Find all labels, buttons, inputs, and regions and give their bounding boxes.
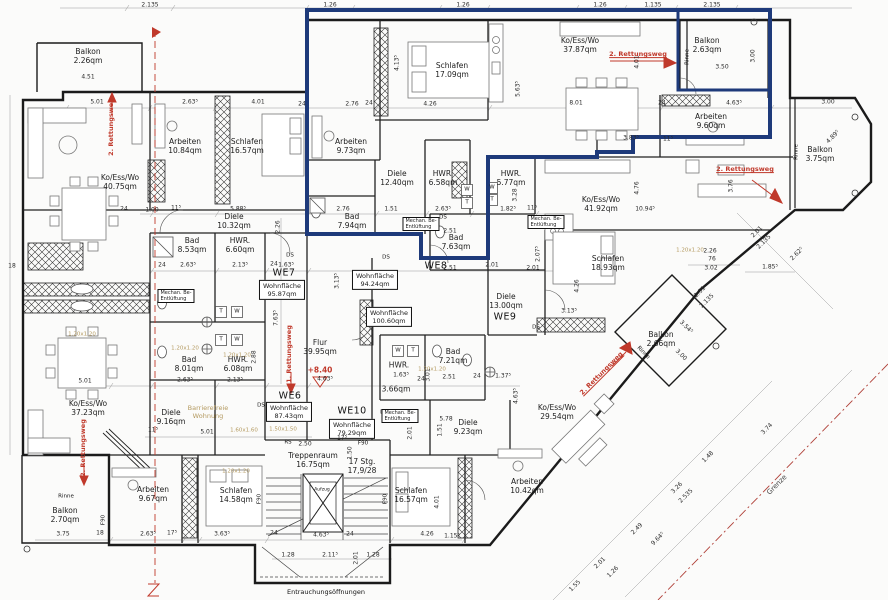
- desk-arbeiten-se: [498, 449, 542, 458]
- staircase: [260, 474, 388, 577]
- arrow-down: [287, 384, 295, 393]
- arrow-up: [108, 93, 116, 102]
- elevator: [303, 474, 343, 532]
- dining-table-sw: [58, 338, 106, 388]
- dryer-box: [408, 346, 419, 357]
- corridor-fixture: [71, 301, 93, 311]
- floor-plan: Balkon 2.26qmKo/Ess/Wo 40.75qmArbeiten 1…: [0, 0, 888, 600]
- dining-table-nw: [62, 188, 106, 240]
- level-triangle: [313, 377, 327, 387]
- arrow-down: [80, 476, 88, 485]
- dining-table-n: [566, 88, 638, 130]
- arrow-right: [664, 57, 676, 68]
- toilet: [463, 354, 472, 366]
- washer-box: [232, 307, 243, 318]
- washer-box: [393, 346, 404, 357]
- section-z-mark: [148, 584, 159, 596]
- toilet: [436, 226, 445, 238]
- section-flag: [152, 27, 161, 38]
- corridor-fixture: [71, 284, 93, 294]
- toilet: [158, 297, 167, 309]
- toilet: [433, 345, 442, 357]
- desk-arbeiten-nw: [155, 104, 165, 148]
- dryer-box: [216, 335, 227, 346]
- sofa-se: [550, 394, 631, 475]
- sofa-n: [560, 22, 640, 36]
- kitchen-counter-n: [489, 24, 503, 102]
- desk-arbeiten-sw: [112, 468, 156, 477]
- washer-box: [462, 185, 473, 196]
- plan-drawing: [0, 0, 888, 600]
- doors: [160, 78, 696, 500]
- sanitary-fixtures: [71, 183, 498, 378]
- toilet: [158, 346, 167, 358]
- desk-arbeiten-n: [312, 116, 322, 158]
- coffee-table-nw: [59, 136, 77, 154]
- grenze-line: [658, 364, 888, 600]
- dryer-box: [462, 198, 473, 209]
- arrow-diag: [770, 189, 782, 203]
- dryer-box: [216, 307, 227, 318]
- kitchen-counter-e: [545, 160, 630, 173]
- sideboard-nw: [132, 104, 142, 144]
- sofa-e: [698, 184, 766, 197]
- furniture: [28, 22, 766, 526]
- washer-box: [232, 335, 243, 346]
